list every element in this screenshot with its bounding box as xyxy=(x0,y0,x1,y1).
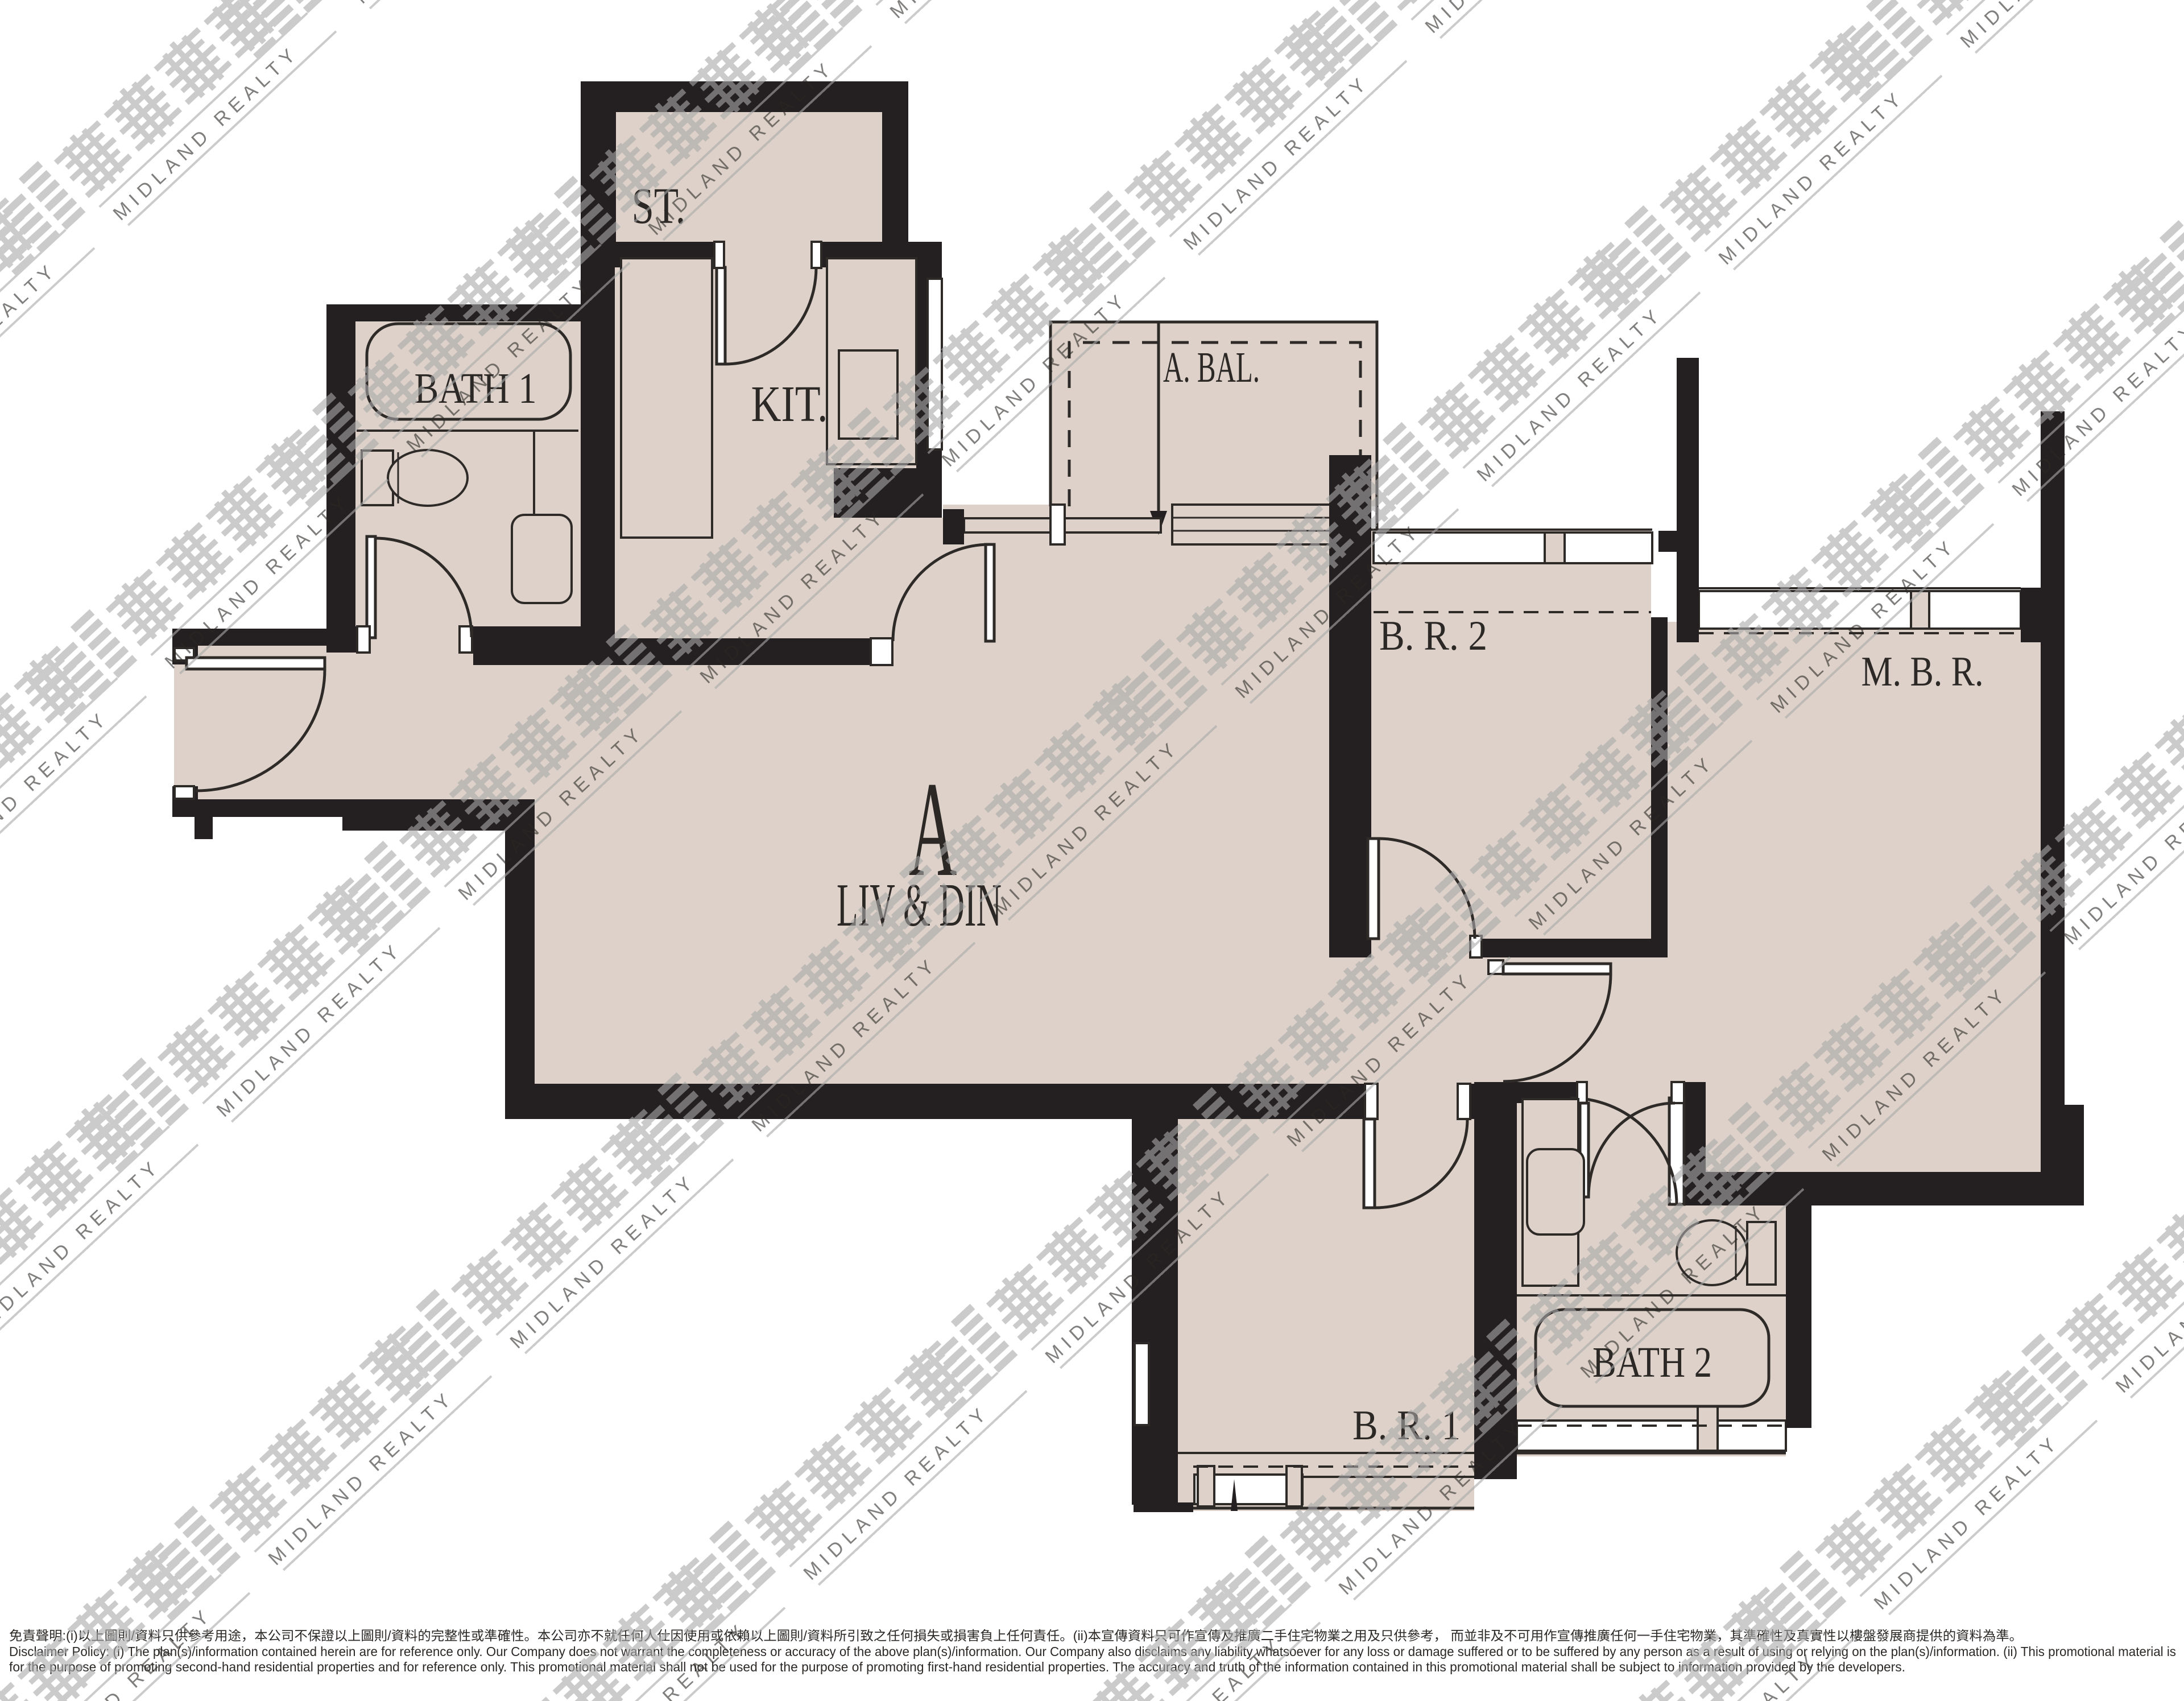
svg-text:Disclaimer Policy: (i) The pla: Disclaimer Policy: (i) The plan(s)/infor… xyxy=(9,1644,2176,1659)
svg-text:for the purpose of promoting s: for the purpose of promoting second-hand… xyxy=(9,1659,1905,1674)
svg-text:KIT.: KIT. xyxy=(751,376,828,432)
svg-text:A. BAL.: A. BAL. xyxy=(1163,344,1260,391)
svg-text:免責聲明:(i)以上圖則/資料只供參考用途，本公司不保證以上: 免責聲明:(i)以上圖則/資料只供參考用途，本公司不保證以上圖則/資料的完整性或… xyxy=(9,1628,2022,1643)
svg-text:M. B. R.: M. B. R. xyxy=(1862,649,1984,695)
svg-text:B. R. 2: B. R. 2 xyxy=(1379,613,1487,659)
